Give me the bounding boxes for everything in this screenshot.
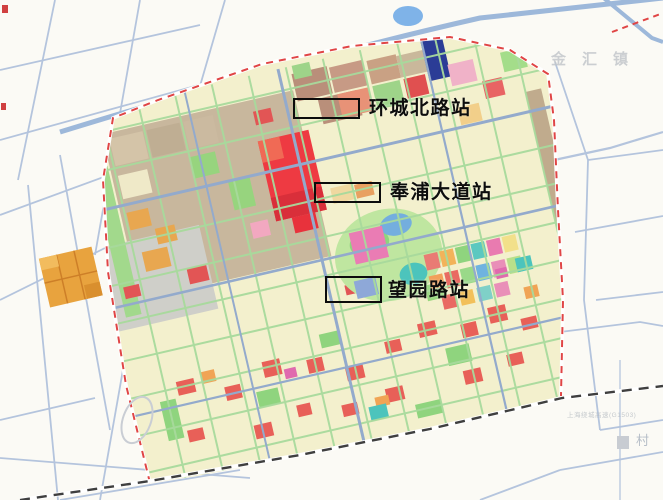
callout-box-huancheng-north-road[interactable] xyxy=(293,98,360,119)
station-label-fengpu-avenue: 奉浦大道站 xyxy=(390,182,493,203)
station-label-wangyuan-road: 望园路站 xyxy=(388,280,470,301)
callout-box-wangyuan-road[interactable] xyxy=(325,276,382,303)
village-label: 村 xyxy=(636,430,649,449)
map-canvas[interactable] xyxy=(0,0,663,500)
town-label-jinhui: 金汇镇 xyxy=(551,48,644,69)
expressway-label: 上海绕城高速(G1503) xyxy=(567,409,636,419)
planning-map-screenshot: 环城北路站 奉浦大道站 望园路站 金汇镇 村 上海绕城高速(G1503) xyxy=(0,0,663,500)
village-blob xyxy=(617,436,629,449)
callout-box-fengpu-avenue[interactable] xyxy=(314,182,381,203)
station-label-huancheng-north-road: 环城北路站 xyxy=(369,98,472,119)
